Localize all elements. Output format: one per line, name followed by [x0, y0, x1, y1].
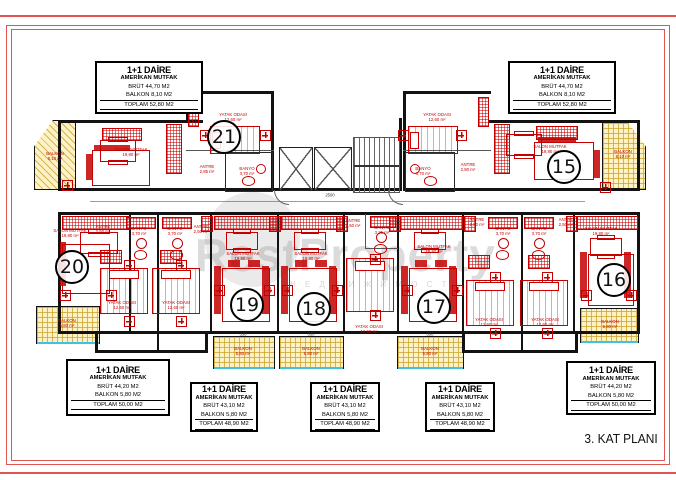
info-toplam: TOPLAM 52,80 M2	[100, 101, 198, 110]
room-name: YATAK ODASI	[475, 318, 503, 323]
sink	[256, 164, 266, 174]
bed-pillow	[161, 270, 191, 279]
info-title: 1+1 DAİRE	[571, 365, 651, 375]
corner-marker	[176, 316, 187, 327]
room-area: 3,70 m²	[531, 232, 546, 237]
corner-marker	[370, 254, 381, 265]
apartment-info-box: 1+1 DAİREAMERİKAN MUTFAKBRÜT 43,10 M2BAL…	[425, 382, 495, 432]
room-label: BANYO3,70 m²	[495, 227, 510, 236]
room-area: 19,80 m²	[226, 257, 259, 262]
room-area: 8,10 m²	[614, 155, 632, 160]
info-subtitle: AMERİKAN MUTFAK	[513, 75, 611, 83]
room-label: SALON MUTFAK19,80 m²	[584, 227, 617, 236]
wall	[637, 120, 640, 190]
apartment-info-box: 1+1 DAİREAMERİKAN MUTFAKBRÜT 44,70 M2BAL…	[508, 61, 616, 114]
room-area: 8,10 m²	[46, 157, 64, 162]
room-area: 19,80 m²	[114, 153, 147, 158]
room-area: 2,50 m²	[346, 224, 361, 229]
info-balkon: BALKON 5,80 M2	[430, 411, 490, 420]
room-name: BANYO	[239, 167, 254, 172]
corner-marker	[370, 310, 381, 321]
wall	[205, 331, 208, 352]
corner-marker	[452, 285, 463, 296]
room-name: ANTRE	[346, 219, 361, 224]
room-name: YATAK ODASI	[355, 325, 383, 330]
unit-number-circle: 20	[55, 250, 89, 284]
corner-marker	[332, 285, 343, 296]
room-label: ANTRE2,50 m²	[346, 219, 361, 228]
toilet	[532, 250, 545, 260]
room-area: 3,70 m²	[167, 232, 182, 237]
unit-number-circle: 18	[297, 292, 331, 326]
info-title: 1+1 DAİRE	[71, 365, 165, 375]
balcony-glass-railing	[398, 367, 463, 370]
corner-marker	[600, 182, 611, 193]
apartment-info-box: 1+1 DAİREAMERİKAN MUTFAKBRÜT 44,70 M2BAL…	[95, 61, 203, 114]
cabinet	[269, 216, 281, 232]
room-area: 19,80 m²	[53, 234, 86, 239]
bed-pillow	[109, 270, 139, 279]
toilet	[170, 250, 183, 260]
sofa	[86, 154, 92, 180]
staircase	[353, 137, 400, 193]
room-name: BANYO	[374, 226, 389, 231]
sofa	[415, 260, 427, 267]
sink	[498, 238, 509, 249]
info-subtitle: AMERİKAN MUTFAK	[430, 395, 490, 403]
room-area: 2,85 m²	[200, 170, 215, 175]
room-area: 12,60 m²	[475, 323, 503, 328]
room-label: ANTRE2,50 m²	[559, 218, 574, 227]
wall	[58, 120, 203, 123]
room-label: ANTRE2,50 m²	[96, 225, 111, 234]
elevator-shaft	[314, 147, 352, 191]
corner-marker	[542, 272, 553, 283]
room-name: ANTRE	[194, 225, 209, 230]
room-name: BALKON	[302, 347, 320, 352]
corner-marker	[456, 130, 467, 141]
cabinet	[166, 124, 182, 174]
toilet	[374, 244, 387, 254]
door-swing	[388, 190, 403, 205]
info-balkon: BALKON 5,80 M2	[315, 411, 375, 420]
info-subtitle: AMERİKAN MUTFAK	[571, 376, 651, 384]
room-label: YATAK ODASI12,60 m²	[423, 113, 451, 122]
info-subtitle: AMERİKAN MUTFAK	[71, 375, 165, 383]
room-name: BALKON	[601, 320, 619, 325]
room-label: ANTRE2,50 m²	[194, 225, 209, 234]
wall	[637, 212, 640, 334]
room-label: YATAK ODASI12,60 m²	[475, 318, 503, 327]
apartment-info-box: 1+1 DAİREAMERİKAN MUTFAKBRÜT 43,10 M2BAL…	[310, 382, 380, 432]
room-name: ANTRE	[559, 218, 574, 223]
dimension-label: 330	[426, 333, 433, 337]
balcony-glass-railing	[581, 341, 638, 344]
room-name: SALON MUTFAK	[417, 245, 450, 250]
apartment-info-box: 1+1 DAİREAMERİKAN MUTFAKBRÜT 44,20 M2BAL…	[566, 361, 656, 415]
room-label: BALKON5,80 m²	[58, 319, 76, 328]
wall	[462, 350, 578, 353]
room-label: BANYO3,70 m²	[531, 227, 546, 236]
info-toplam: TOPLAM 48,90 M2	[195, 420, 253, 429]
corner-marker	[124, 260, 135, 271]
room-area: 2,50 m²	[96, 230, 111, 235]
balcony-glass-railing	[37, 342, 99, 345]
wall	[95, 331, 98, 352]
info-toplam: TOPLAM 50,00 M2	[571, 401, 651, 410]
room-area: 5,80 m²	[421, 352, 439, 357]
info-brut: BRÜT 43,10 M2	[315, 402, 375, 410]
room-name: YATAK ODASI	[219, 113, 247, 118]
room-name: YATAK ODASI	[531, 318, 559, 323]
info-title: 1+1 DAİRE	[195, 384, 253, 394]
corner-marker	[214, 285, 225, 296]
sheet-title: 3. KAT PLANI	[585, 431, 658, 446]
unit-number-circle: 19	[230, 288, 264, 322]
bed-pillow	[475, 282, 505, 291]
room-area: 3,70 m²	[415, 172, 430, 177]
dimension-label: 2500	[325, 194, 334, 198]
room-label: SALON MUTFAK19,80 m²	[53, 229, 86, 238]
info-title: 1+1 DAİRE	[430, 384, 490, 394]
info-brut: BRÜT 44,20 M2	[71, 383, 165, 391]
wall	[58, 212, 640, 215]
wall	[462, 331, 465, 352]
room-area: 12,60 m²	[355, 330, 383, 335]
room-label: BALKON5,80 m²	[601, 320, 619, 329]
unit-number-circle: 21	[207, 120, 241, 154]
room-label: YATAK ODASI12,60 m²	[531, 318, 559, 327]
cabinet	[468, 255, 490, 269]
sink	[172, 238, 183, 249]
room-area: 19,80 m²	[584, 232, 617, 237]
room-label: BANYO3,70 m²	[167, 227, 182, 236]
corner-marker	[581, 290, 592, 301]
room-name: BANYO	[531, 227, 546, 232]
room-label: SALON MUTFAK19,80 m²	[417, 245, 450, 254]
room-name: ANTRE	[200, 165, 215, 170]
room-label: YATAK ODASI12,60 m²	[108, 301, 136, 310]
info-title: 1+1 DAİRE	[513, 65, 611, 75]
info-title: 1+1 DAİRE	[315, 384, 375, 394]
room-name: SALON MUTFAK	[294, 252, 327, 257]
room-label: YATAK ODASI12,60 m²	[355, 325, 383, 334]
dimension-label: 330	[239, 333, 246, 337]
room-name: YATAK ODASI	[162, 301, 190, 306]
info-subtitle: AMERİKAN MUTFAK	[100, 75, 198, 83]
bed	[346, 258, 394, 312]
corner-marker	[542, 328, 553, 339]
door-swing	[274, 190, 289, 205]
bed-pillow	[529, 282, 559, 291]
sink	[534, 238, 545, 249]
bed	[408, 126, 458, 154]
cabinet	[281, 216, 343, 230]
corner-marker	[106, 290, 117, 301]
info-toplam: TOPLAM 48,90 M2	[315, 420, 375, 429]
room-name: ANTRE	[470, 218, 485, 223]
room-name: BANYO	[495, 227, 510, 232]
floor-plan-sheet: RestProperty Н Е Д В И Ж И М О С Т Ь YAT…	[0, 0, 676, 480]
room-area: 2,50 m²	[194, 230, 209, 235]
room-label: ANTRE2,80 m²	[461, 163, 476, 172]
elevator-shaft	[279, 147, 313, 191]
corner-marker	[62, 180, 73, 191]
room-name: BALKON	[614, 150, 632, 155]
corner-marker	[402, 285, 413, 296]
toilet	[134, 250, 147, 260]
info-balkon: BALKON 8,10 M2	[513, 91, 611, 100]
room-area: 12,60 m²	[162, 306, 190, 311]
balcony-glass-railing	[280, 367, 343, 370]
wall	[488, 120, 640, 123]
info-brut: BRÜT 43,10 M2	[430, 402, 490, 410]
wall	[403, 91, 491, 94]
room-name: YATAK ODASI	[108, 301, 136, 306]
room-area: 2,50 m²	[559, 223, 574, 228]
room-label: BALKON5,80 m²	[234, 347, 252, 356]
room-name: BANYO	[415, 167, 430, 172]
toilet	[242, 176, 255, 186]
info-subtitle: AMERİKAN MUTFAK	[315, 395, 375, 403]
floor-plan-drawing: YATAK ODASI12,60 m²SALON MUTFAK19,80 m²A…	[0, 0, 676, 480]
room-area: 19,80 m²	[294, 257, 327, 262]
room-label: BANYO3,70 m²	[239, 167, 254, 176]
corridor-dimension-line	[90, 201, 585, 202]
sofa	[435, 260, 447, 267]
room-name: BALKON	[46, 152, 64, 157]
wall	[95, 350, 208, 353]
room-label: BALKON5,80 m²	[421, 347, 439, 356]
bed-pillow	[410, 132, 419, 149]
corner-marker	[260, 130, 271, 141]
room-name: ANTRE	[461, 163, 476, 168]
corner-marker	[490, 272, 501, 283]
balcony-glass-railing	[214, 367, 274, 370]
room-name: BALKON	[421, 347, 439, 352]
room-area: 3,70 m²	[239, 172, 254, 177]
room-label: BALKON5,80 m²	[302, 347, 320, 356]
room-label: BANYO3,70 m²	[415, 167, 430, 176]
info-balkon: BALKON 5,80 M2	[71, 391, 165, 400]
room-area: 2,80 m²	[461, 168, 476, 173]
room-area: 12,60 m²	[531, 323, 559, 328]
room-label: SALON MUTFAK19,80 m²	[294, 252, 327, 261]
info-brut: BRÜT 44,70 M2	[513, 83, 611, 91]
info-toplam: TOPLAM 48,90 M2	[430, 420, 490, 429]
room-area: 5,80 m²	[302, 352, 320, 357]
corner-marker	[124, 316, 135, 327]
info-toplam: TOPLAM 52,80 M2	[513, 101, 611, 110]
room-name: YATAK ODASI	[423, 113, 451, 118]
room-label: ANTRE2,85 m²	[200, 165, 215, 174]
toilet	[496, 250, 509, 260]
room-name: SALON MUTFAK	[226, 252, 259, 257]
cabinet	[478, 97, 489, 127]
room-label: SALON MUTFAK19,80 m²	[114, 148, 147, 157]
room-name: BALKON	[234, 347, 252, 352]
info-brut: BRÜT 43,10 M2	[195, 402, 253, 410]
room-area: 12,60 m²	[108, 306, 136, 311]
info-brut: BRÜT 44,70 M2	[100, 83, 198, 91]
room-area: 19,80 m²	[417, 250, 450, 255]
room-area: 3,25 m²	[374, 231, 389, 236]
room-name: BANYO	[131, 227, 146, 232]
info-balkon: BALKON 5,80 M2	[195, 411, 253, 420]
room-label: BALKON8,10 m²	[614, 150, 632, 159]
corner-marker	[264, 285, 275, 296]
room-label: SALON MUTFAK19,80 m²	[226, 252, 259, 261]
dining-table	[590, 238, 622, 256]
room-area: 5,80 m²	[601, 325, 619, 330]
dimension-label: 330	[307, 333, 314, 337]
corner-marker	[282, 285, 293, 296]
room-label: ANTRE2,50 m²	[470, 218, 485, 227]
sofa	[594, 150, 600, 178]
room-area: 5,80 m²	[234, 352, 252, 357]
room-area: 3,70 m²	[495, 232, 510, 237]
toilet	[424, 176, 437, 186]
room-area: 3,70 m²	[131, 232, 146, 237]
info-balkon: BALKON 8,10 M2	[100, 91, 198, 100]
room-label: BANYO3,70 m²	[131, 227, 146, 236]
room-name: ANTRE	[96, 225, 111, 230]
room-label: BALKON8,10 m²	[46, 152, 64, 161]
apartment-info-box: 1+1 DAİREAMERİKAN MUTFAKBRÜT 43,10 M2BAL…	[190, 382, 258, 432]
room-area: 5,80 m²	[58, 324, 76, 329]
info-subtitle: AMERİKAN MUTFAK	[195, 395, 253, 403]
dining-table	[226, 232, 258, 250]
room-name: SALON MUTFAK	[114, 148, 147, 153]
unit-number-circle: 15	[547, 150, 581, 184]
sofa	[538, 137, 576, 143]
dining-table	[294, 232, 326, 250]
unit-number-circle: 17	[417, 290, 451, 324]
info-title: 1+1 DAİRE	[100, 65, 198, 75]
sink	[136, 238, 147, 249]
corner-marker	[490, 328, 501, 339]
corner-marker	[176, 260, 187, 271]
wall	[575, 331, 578, 352]
room-name: BALKON	[58, 319, 76, 324]
partition-line	[365, 214, 366, 249]
unit-number-circle: 16	[597, 263, 631, 297]
corner-marker	[60, 290, 71, 301]
room-name: SALON MUTFAK	[584, 227, 617, 232]
info-balkon: BALKON 5,80 M2	[571, 392, 651, 401]
room-name: SALON MUTFAK	[53, 229, 86, 234]
room-name: BANYO	[167, 227, 182, 232]
apartment-info-box: 1+1 DAİREAMERİKAN MUTFAKBRÜT 44,20 M2BAL…	[66, 359, 170, 416]
info-toplam: TOPLAM 50,00 M2	[71, 401, 165, 410]
room-label: BANYO3,25 m²	[374, 226, 389, 235]
info-brut: BRÜT 44,20 M2	[571, 383, 651, 391]
corner-marker	[626, 290, 637, 301]
cabinet	[400, 216, 463, 230]
room-area: 2,50 m²	[470, 223, 485, 228]
room-area: 12,60 m²	[423, 118, 451, 123]
corner-marker	[398, 130, 409, 141]
room-label: YATAK ODASI12,60 m²	[162, 301, 190, 310]
